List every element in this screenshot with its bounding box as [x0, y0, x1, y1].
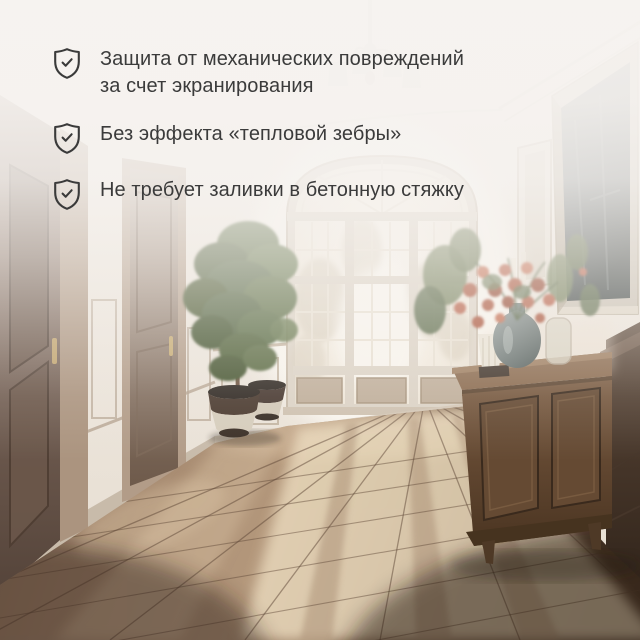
small-box	[479, 365, 510, 378]
shield-check-icon	[52, 122, 82, 156]
shield-check-icon	[52, 47, 82, 81]
feature-list: Защита от механических повреждений за сч…	[52, 46, 616, 233]
promo-card: Защита от механических повреждений за сч…	[0, 0, 640, 640]
door-bottom-panels	[297, 378, 466, 403]
feature-item: Защита от механических повреждений за сч…	[52, 46, 616, 100]
sideboard-shadow	[450, 551, 640, 581]
door2-handle	[169, 336, 173, 356]
shield-check-icon	[52, 178, 82, 212]
feature-text: Не требует заливки в бетонную стяжку	[100, 177, 464, 204]
feature-text: Защита от механических повреждений за сч…	[100, 46, 464, 100]
feature-item: Не требует заливки в бетонную стяжку	[52, 177, 616, 212]
glass-vase	[546, 318, 571, 364]
feature-text: Без эффекта «тепловой зебры»	[100, 121, 401, 148]
feature-item: Без эффекта «тепловой зебры»	[52, 121, 616, 156]
door1-handle	[52, 338, 57, 364]
